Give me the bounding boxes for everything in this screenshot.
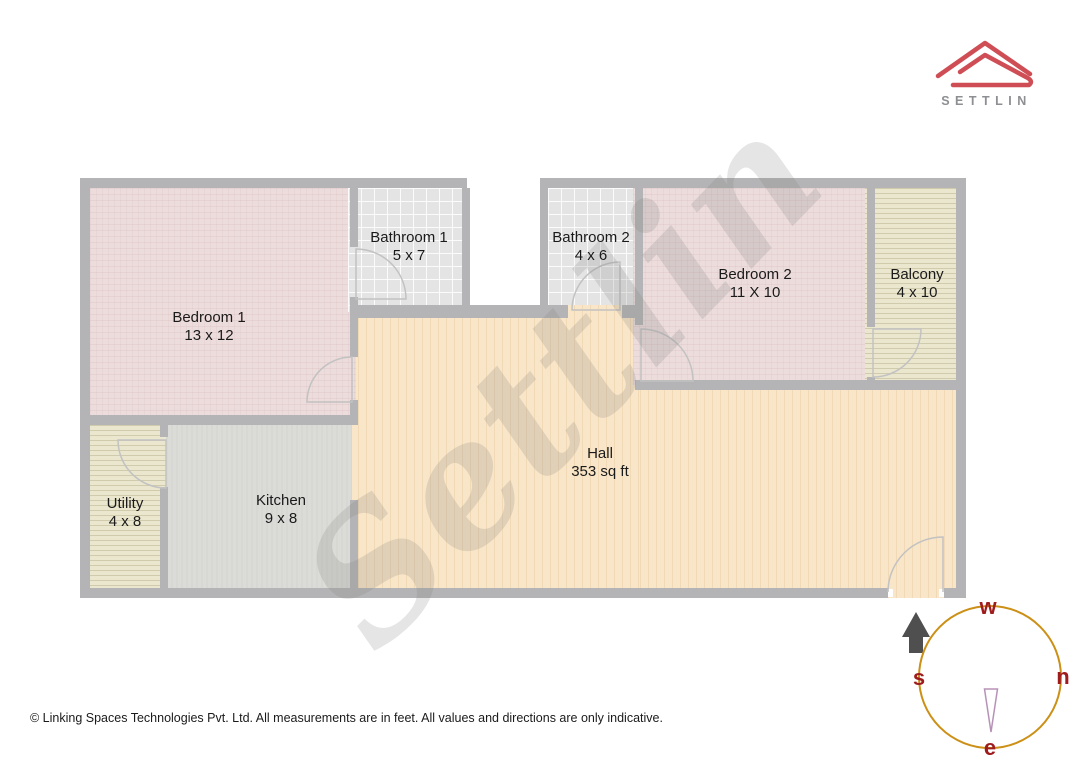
room-name: Bathroom 2 (521, 229, 661, 247)
compass-letter-s: s (913, 665, 925, 691)
wall-segment (80, 178, 90, 598)
wall-segment (867, 188, 875, 327)
room-name: Bedroom 1 (139, 309, 279, 327)
room-name: Bathroom 1 (339, 229, 479, 247)
settlin-logo: SETTLIN (933, 34, 1035, 108)
room-name: Bedroom 2 (685, 266, 825, 284)
room-dims: 4 x 10 (847, 284, 987, 302)
compass-letter-e: e (984, 735, 996, 761)
room-name: Balcony (847, 266, 987, 284)
wall-segment (956, 178, 966, 598)
room-label-bedroom2: Bedroom 2 11 X 10 (685, 266, 825, 302)
copyright-note: © Linking Spaces Technologies Pvt. Ltd. … (30, 711, 663, 725)
room-dims: 9 x 8 (211, 510, 351, 528)
compass-ring (919, 606, 1061, 748)
room-name: Utility (55, 495, 195, 513)
room-label-bathroom2: Bathroom 2 4 x 6 (521, 229, 661, 265)
settlin-logo-icon (933, 34, 1035, 90)
room-label-utility: Utility 4 x 8 (55, 495, 195, 531)
room-dims: 13 x 12 (139, 327, 279, 345)
room-name: Kitchen (211, 492, 351, 510)
compass-needle-icon (985, 689, 998, 732)
door-jamb (939, 589, 944, 597)
room-name: Hall (530, 445, 670, 463)
wall-segment (80, 415, 358, 425)
room-label-bedroom1: Bedroom 1 13 x 12 (139, 309, 279, 345)
compass-letter-n: n (1056, 664, 1069, 690)
room-dims: 4 x 8 (55, 513, 195, 531)
room-dims: 11 X 10 (685, 284, 825, 302)
wall-segment (350, 297, 358, 357)
bedroom1-floor (90, 188, 356, 420)
wall-segment (867, 377, 875, 382)
room-label-kitchen: Kitchen 9 x 8 (211, 492, 351, 528)
hall-floor-right (640, 384, 958, 598)
wall-segment (160, 425, 168, 437)
wall-segment (944, 588, 966, 598)
room-label-bathroom1: Bathroom 1 5 x 7 (339, 229, 479, 265)
room-label-balcony: Balcony 4 x 10 (847, 266, 987, 302)
wall-segment (80, 178, 467, 188)
room-dims: 4 x 6 (521, 247, 661, 265)
settlin-logo-text: SETTLIN (933, 94, 1035, 108)
room-dims: 5 x 7 (339, 247, 479, 265)
room-dims: 353 sq ft (530, 463, 670, 481)
compass-letter-w: w (979, 594, 996, 620)
floorplan-page: Settlin Bedroom 1 13 x 12 Bathroom 1 5 x… (0, 0, 1080, 764)
door-jamb (888, 589, 893, 597)
entrance-arrow-icon (902, 612, 930, 653)
room-label-hall: Hall 353 sq ft (530, 445, 670, 481)
